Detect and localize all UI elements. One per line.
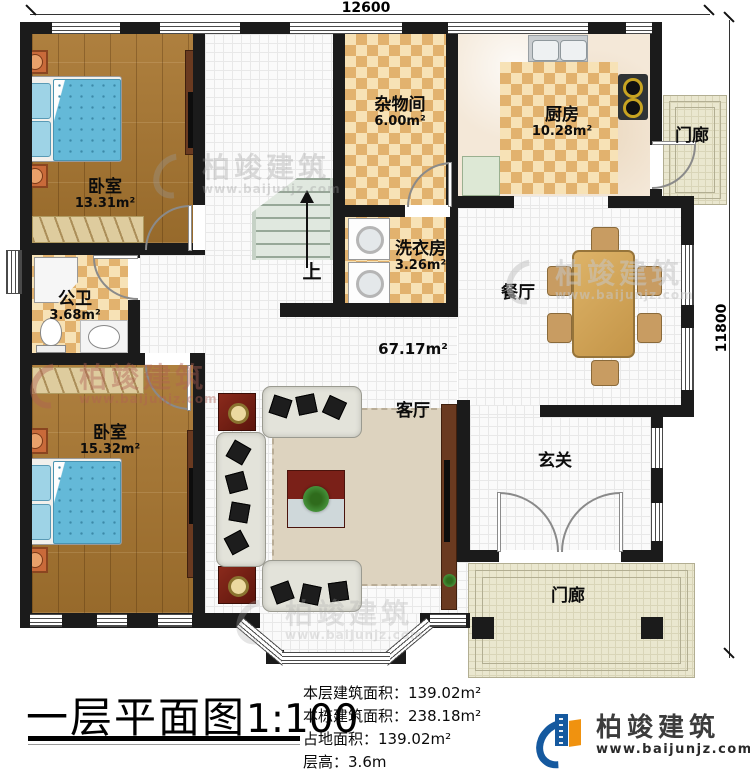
dining-chair: [637, 266, 662, 296]
stat-floor-height: 层高：3.6m: [303, 751, 386, 772]
door-opening: [145, 353, 190, 365]
kitchen-sink: [528, 35, 588, 62]
plant-icon: [303, 486, 329, 512]
cushion: [224, 530, 250, 556]
window: [448, 22, 588, 34]
fridge: [462, 156, 500, 196]
wall: [457, 400, 470, 562]
burner-icon: [623, 78, 643, 98]
wall: [621, 550, 663, 562]
cushion: [328, 581, 349, 602]
sink-basin: [532, 40, 559, 61]
foyer-passage-floor: [470, 405, 540, 417]
dining-chair: [591, 360, 619, 386]
wardrobe: [32, 216, 144, 243]
dining-chair: [637, 313, 662, 343]
wall: [20, 22, 32, 628]
door-leaf: [448, 162, 452, 207]
room-label-bathroom: 公卫 3.68m²: [30, 290, 120, 324]
window: [290, 22, 402, 34]
title-underline: [28, 736, 300, 741]
plant-icon: [443, 574, 456, 587]
hallway-floor: [140, 255, 205, 353]
pillow: [29, 504, 51, 540]
window: [6, 250, 22, 294]
brand-logo-icon: [538, 710, 586, 762]
stairs-direction-arrow: [306, 196, 308, 268]
stat-floor-area: 本层建筑面积：139.02m²: [303, 682, 481, 703]
cushion: [295, 393, 318, 416]
tv: [444, 460, 450, 542]
wall: [470, 550, 499, 562]
room-label-bedroom-1: 卧室 13.31m²: [50, 178, 160, 212]
logo-building-orange-icon: [569, 719, 581, 747]
dining-room-floor: [458, 208, 681, 405]
dining-chair: [547, 313, 572, 343]
dimension-width: 12600: [20, 0, 712, 16]
window: [30, 614, 62, 627]
window: [681, 245, 694, 305]
corner-table: [218, 566, 256, 604]
dining-table: [572, 250, 635, 358]
logo-building-blue-icon: [555, 714, 568, 746]
pillow: [29, 83, 51, 119]
washer-door-icon: [356, 270, 384, 298]
wall: [193, 365, 205, 613]
room-label-foyer: 玄关: [520, 452, 590, 471]
wall: [280, 303, 458, 317]
sink-basin: [560, 40, 587, 61]
bed: [25, 76, 122, 162]
room-label-dining: 餐厅: [488, 284, 548, 303]
toilet-tank: [36, 345, 66, 353]
wall: [458, 196, 514, 208]
cushion: [225, 471, 248, 494]
stat-building-area: 本栋建筑面积：238.18m²: [303, 705, 481, 726]
burner-icon: [623, 98, 643, 118]
window: [651, 503, 663, 541]
wall: [333, 22, 345, 317]
room-label-living: 客厅: [378, 402, 448, 421]
porch-column: [641, 617, 663, 639]
stove: [618, 74, 648, 120]
door-leaf: [497, 492, 501, 552]
sofa: [262, 560, 362, 612]
pillow: [29, 121, 51, 157]
cushion: [299, 583, 322, 606]
window: [681, 328, 694, 390]
dining-chair: [547, 266, 572, 296]
porch-column: [472, 617, 494, 639]
window: [651, 428, 663, 468]
lamp-icon: [228, 403, 249, 424]
stat-footprint-area: 占地面积：139.02m²: [303, 728, 451, 749]
cushion: [228, 501, 250, 523]
door-leaf: [93, 255, 138, 259]
mattress: [53, 461, 121, 544]
room-label-laundry: 洗衣房 3.26m²: [378, 240, 463, 274]
corner-table: [218, 393, 256, 431]
living-room-area: 67.17m²: [368, 341, 458, 358]
stairs-up-label: 上: [297, 262, 327, 283]
cushion: [270, 580, 294, 604]
brand-text: 柏竣建筑 www.baijunjz.com: [596, 715, 750, 757]
bed: [25, 458, 122, 545]
door-leaf: [619, 492, 623, 552]
room-label-porch-top: 门廊: [660, 127, 724, 146]
pillow: [29, 465, 51, 501]
bay-window: [282, 652, 390, 664]
title-block: 一层平面图1:100 本层建筑面积：139.02m² 本栋建筑面积：238.18…: [0, 676, 750, 780]
wall: [608, 196, 694, 208]
lamp-icon: [228, 576, 249, 597]
wardrobe: [32, 367, 144, 394]
title-underline-thin: [28, 744, 300, 745]
window: [430, 614, 466, 627]
brand-logo: 柏竣建筑 www.baijunjz.com: [538, 710, 750, 762]
cushion: [269, 395, 293, 419]
room-label-kitchen: 厨房 10.28m²: [512, 106, 612, 140]
door-leaf: [187, 365, 191, 411]
window: [97, 614, 127, 627]
sofa: [216, 432, 266, 567]
floor-plan: 卧室 13.31m² 公卫 3.68m² 卧室 15.32m² 杂物间 6.00…: [0, 0, 750, 780]
mattress: [53, 79, 121, 161]
bathroom-sink: [88, 325, 120, 349]
window: [626, 22, 652, 34]
cushion: [322, 395, 347, 420]
arrow-up-icon: [300, 183, 314, 203]
wall: [540, 405, 694, 417]
room-label-storage: 杂物间 6.00m²: [350, 96, 450, 130]
room-label-bedroom-2: 卧室 15.32m²: [55, 424, 165, 458]
dimension-height: 11800: [714, 298, 730, 358]
door-opening: [193, 205, 205, 250]
window: [160, 22, 240, 34]
window: [52, 22, 120, 34]
cushion: [226, 440, 252, 466]
window: [158, 614, 192, 627]
door-leaf: [188, 205, 192, 251]
kitchen-opening-floor: [512, 196, 608, 208]
room-label-porch-bottom: 门廊: [536, 587, 600, 606]
sofa: [262, 386, 362, 438]
